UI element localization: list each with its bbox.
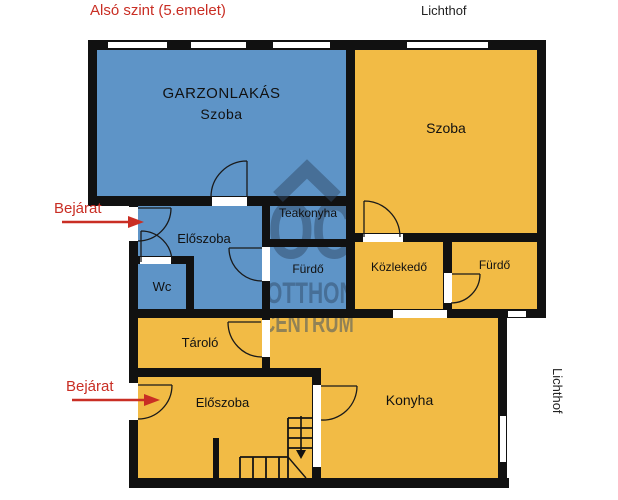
label-furdo-jobb: Fürdő — [452, 259, 537, 273]
wall-middle-band — [129, 309, 546, 318]
passage-kozlekedo-konyha — [393, 310, 447, 318]
door-opening-wc — [140, 257, 171, 264]
wall-outer-left-upper — [88, 40, 97, 206]
wall-blue-yellow-divider — [346, 46, 355, 310]
window-top-2 — [190, 41, 247, 49]
label-eloszoba-felso: Előszoba — [146, 232, 262, 247]
wall-wc-right — [186, 256, 194, 310]
lichthof-label-right: Lichthof — [550, 368, 565, 414]
page-title: Alsó szint (5.emelet) — [90, 2, 226, 19]
label-garzonlakas: GARZONLAKÁS Szoba — [97, 85, 346, 122]
door-opening-entry-top — [129, 207, 138, 241]
window-konyha-lichthof — [499, 415, 507, 463]
window-top-1 — [107, 41, 168, 49]
label-furdo-bal: Fürdő — [270, 263, 346, 277]
label-tarolo: Tároló — [138, 336, 262, 351]
window-top-szoba — [406, 41, 489, 49]
room-szoba — [355, 50, 537, 242]
door-opening-szoba — [363, 234, 403, 242]
room-garzonlakas-szoba — [97, 50, 346, 196]
label-teakonyha: Teakonyha — [270, 207, 346, 221]
door-opening-furdo-bal — [262, 247, 270, 281]
wall-outer-right-upper — [537, 40, 546, 318]
window-furdo-lichthof — [507, 310, 527, 318]
door-opening-entry-bottom — [129, 383, 138, 420]
label-eloszoba-also: Előszoba — [140, 396, 305, 411]
label-wc: Wc — [138, 280, 186, 295]
label-konyha: Konyha — [321, 392, 498, 408]
label-bejarat-top: Bejárat — [54, 200, 102, 217]
wall-outer-bottom — [129, 478, 509, 488]
label-garzonlakas-title: GARZONLAKÁS — [97, 85, 346, 102]
window-top-3 — [272, 41, 331, 49]
floor-plan-canvas: Alsó szint (5.emelet) Lichthof Lichthof … — [0, 0, 618, 500]
door-opening-konyha — [313, 385, 321, 467]
wall-teakonyha-furdo — [262, 239, 355, 247]
label-garzonlakas-subtitle: Szoba — [97, 106, 346, 122]
wall-tarolo-bottom — [129, 368, 321, 377]
label-kozlekedo: Közlekedő — [355, 261, 443, 275]
door-opening-tarolo — [262, 320, 270, 357]
wall-stair-stub — [213, 438, 219, 478]
door-opening-furdo-jobb — [444, 273, 452, 303]
watermark-otthon: OTTHON — [266, 279, 355, 309]
label-bejarat-bottom: Bejárat — [66, 378, 114, 395]
lichthof-label-top: Lichthof — [421, 3, 467, 18]
label-szoba: Szoba — [355, 120, 537, 136]
door-opening-garzon — [212, 197, 247, 206]
